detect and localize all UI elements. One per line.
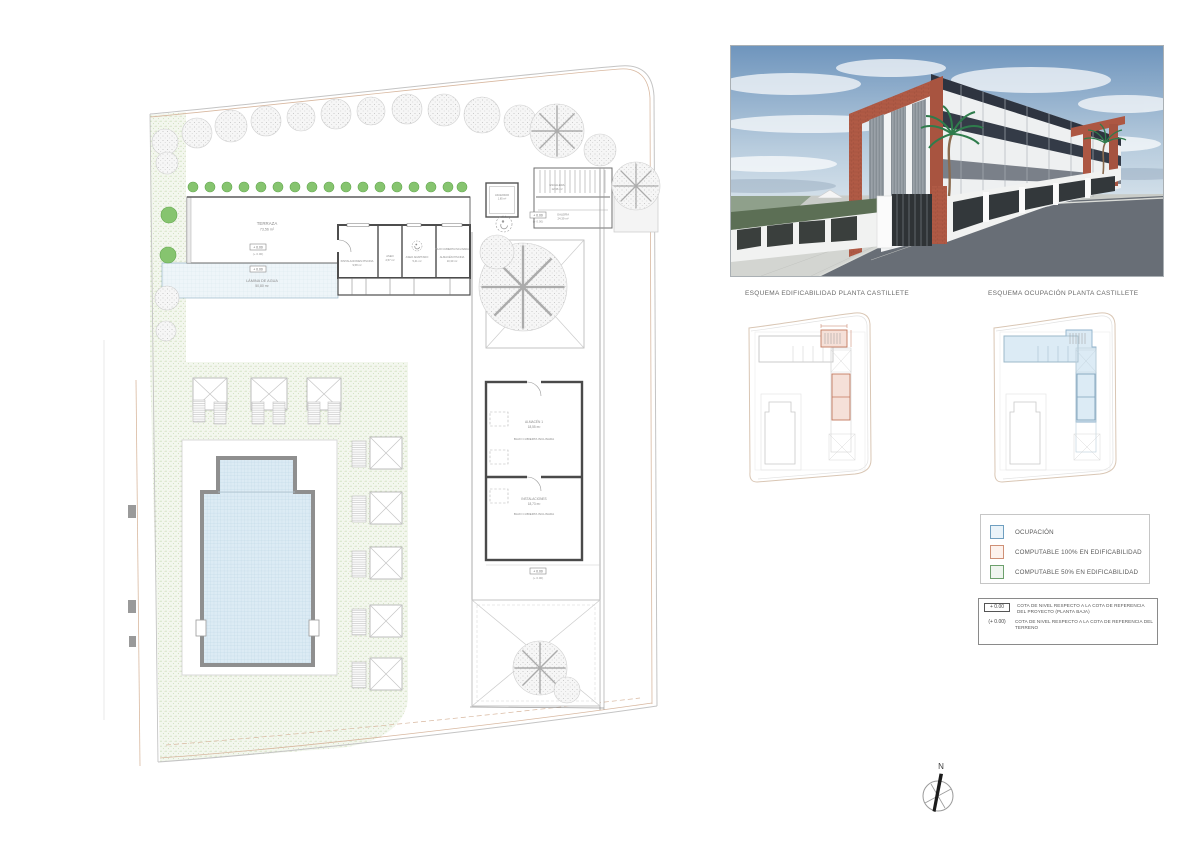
level-symbol-paren: (+ 0.00) (984, 619, 1010, 631)
castillete-rooms (486, 380, 582, 561)
note-text: COTA DE NIVEL RESPECTO A LA COTA DE REFE… (1017, 603, 1153, 615)
room-label: INSTALACIONES PISCINA (341, 259, 374, 263)
drawing-sheet: { "colors": { "legend_blue_border": "#6f… (0, 0, 1200, 848)
room-note: BAJO CUBIERTA INCLINADA (514, 512, 554, 516)
note-row: (+ 0.00) COTA DE NIVEL RESPECTO A LA COT… (984, 619, 1153, 631)
pool-ladder-icon (196, 620, 206, 636)
room-label: ALMACÉN 1 (525, 419, 543, 424)
swimming-pool (202, 458, 313, 665)
legend-swatch-ocupacion (990, 525, 1004, 539)
room-area: 2,57 m² (385, 258, 394, 262)
room-label: ASEO (386, 254, 393, 258)
level-value: + 0.00 (533, 214, 543, 218)
legend-label: OCUPACIÓN (1015, 529, 1054, 536)
wheelchair-icon (496, 216, 512, 232)
brick-pillar (932, 186, 947, 244)
legend-label: COMPUTABLE 100% EN EDIFICABILIDAD (1015, 549, 1142, 556)
legend-item: COMPUTABLE 100% EN EDIFICABILIDAD (990, 542, 1149, 562)
legend-item: OCUPACIÓN (990, 522, 1149, 542)
legend-label: COMPUTABLE 50% EN EDIFICABILIDAD (1015, 569, 1138, 576)
schematic-right-title: ESQUEMA OCUPACIÓN PLANTA CASTILLETE (988, 290, 1138, 297)
north-arrow: N (913, 758, 965, 822)
room-note: BAJO CUBIERTA INCLINADA (514, 437, 554, 441)
level-value: (+ 0.00) (533, 220, 543, 224)
legend-swatch-computable-50 (990, 565, 1004, 579)
north-label: N (938, 762, 944, 771)
room-label: LÁMINA DE AGUA (246, 279, 278, 283)
room-area: 50,80 m² (255, 284, 269, 288)
pool-area (182, 440, 337, 675)
levels-note: + 0.00 COTA DE NIVEL RESPECTO A LA COTA … (978, 598, 1158, 645)
room-label: INSTALACIONES (521, 497, 546, 501)
room-area: 18,55 m² (528, 425, 541, 429)
level-value: + 0.00 (253, 246, 263, 250)
room-area: 9,58 m² (352, 263, 361, 267)
curb-marks (128, 505, 136, 647)
level-value: (+ 0.00) (253, 252, 263, 256)
legend: OCUPACIÓN COMPUTABLE 100% EN EDIFICABILI… (980, 514, 1150, 584)
schematic-ocupacion (980, 302, 1140, 494)
room-note: BAJO CUBIERTA INCLINADA (435, 248, 469, 251)
exterior-render-image (730, 45, 1164, 277)
level-symbol-boxed: + 0.00 (984, 603, 1010, 612)
room-area: 1,85 m² (498, 198, 507, 201)
room-area: 24,39 m² (557, 217, 568, 221)
note-text: COTA DE NIVEL RESPECTO A LA COTA DE REFE… (1015, 619, 1153, 631)
room-area: 10,30 m² (447, 259, 458, 263)
room-label: ASEO ADAPTADO (406, 255, 429, 259)
pool-ladder-icon (309, 620, 319, 636)
entrance-gate (892, 186, 947, 246)
note-row: + 0.00 COTA DE NIVEL RESPECTO A LA COTA … (984, 603, 1153, 615)
schematic-left-title: ESQUEMA EDIFICABILIDAD PLANTA CASTILLETE (745, 290, 909, 297)
room-area: 5,41 m² (412, 259, 421, 263)
room-area: 12,36 m² (551, 187, 562, 191)
level-value: + 0.00 (253, 268, 263, 272)
level-value: + 0.00 (533, 570, 543, 574)
legend-swatch-computable-100 (990, 545, 1004, 559)
room-area: 73,56 m² (260, 227, 275, 231)
level-value: (+ 0.00) (533, 576, 543, 580)
room-area: 18,73 m² (528, 502, 541, 506)
room-label: TERRAZA (257, 221, 278, 226)
site-plan: + 0.00 (+ 0.00) + 0.00 + 0.00 (+ 0.00) +… (0, 0, 700, 848)
room-label: ASCENSOR (495, 194, 509, 197)
schematic-edificabilidad (735, 302, 895, 494)
render-scene (731, 46, 1163, 276)
compass-needle (933, 774, 944, 813)
legend-item: COMPUTABLE 50% EN EDIFICABILIDAD (990, 562, 1149, 582)
